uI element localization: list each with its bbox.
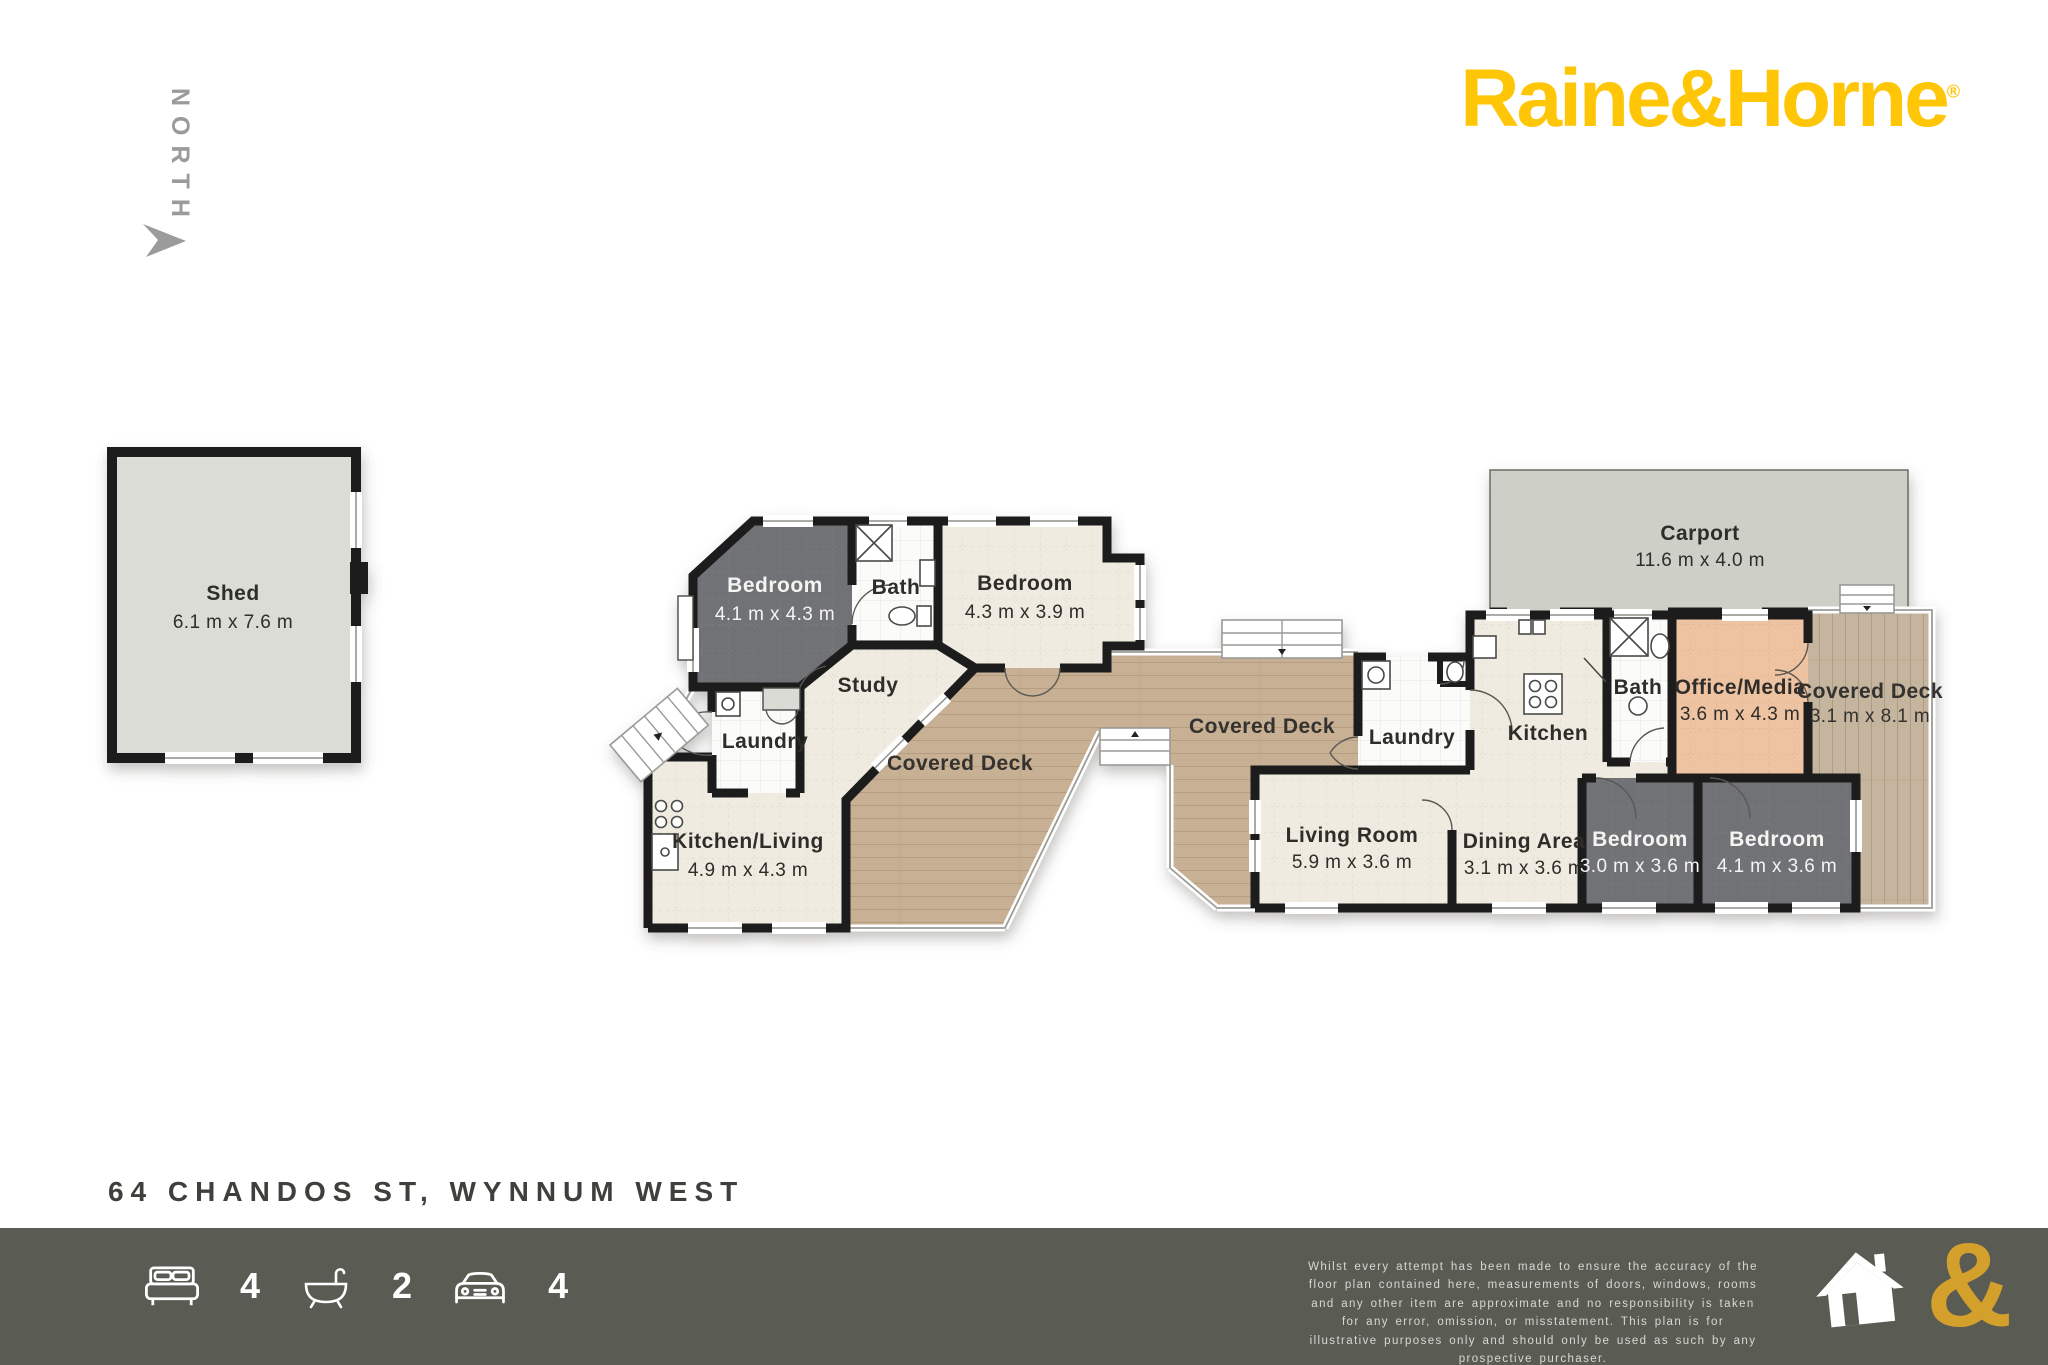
- bedroom1-wardrobe: [678, 596, 693, 660]
- laundry1-closet: [763, 688, 800, 710]
- deck-right-dims: 3.1 m x 8.1 m: [1810, 706, 1930, 727]
- bath2-label: Bath: [1614, 676, 1663, 699]
- deck-middle-label: Covered Deck: [1189, 715, 1335, 738]
- shed-label: Shed: [206, 582, 259, 605]
- shed: Shed 6.1 m x 7.6 m: [112, 452, 368, 758]
- living-dims: 5.9 m x 3.6 m: [1292, 852, 1412, 873]
- kitchen-label: Kitchen: [1508, 722, 1589, 745]
- baths-count: 2: [392, 1265, 412, 1307]
- brand-logo-text: Raine&Horne: [1460, 53, 1946, 144]
- house-icon: [1807, 1239, 1917, 1346]
- kitchen-living-dims: 4.9 m x 4.3 m: [688, 860, 808, 881]
- bedroom2-dims: 4.3 m x 3.9 m: [965, 602, 1085, 623]
- shed-meter-box: [350, 562, 368, 594]
- north-indicator: NORTH: [143, 88, 194, 257]
- north-label: NORTH: [166, 88, 194, 227]
- office-label: Office/Media: [1675, 676, 1806, 699]
- dining-dims: 3.1 m x 3.6 m: [1464, 858, 1584, 879]
- toilet-3: [1651, 634, 1669, 658]
- bedroom1-dims: 4.1 m x 4.3 m: [715, 604, 835, 625]
- study-label: Study: [838, 674, 899, 697]
- vanity-1: [920, 560, 935, 586]
- bed-icon: [140, 1262, 204, 1310]
- cooktop-2: [1530, 681, 1541, 692]
- beds-count: 4: [240, 1265, 260, 1307]
- carport-label: Carport: [1660, 522, 1739, 545]
- shed-dims: 6.1 m x 7.6 m: [173, 612, 293, 633]
- kitchen-island: [1524, 674, 1562, 714]
- brand-logo: Raine&Horne®: [1460, 52, 1960, 146]
- bedroom3-label: Bedroom: [1592, 828, 1688, 851]
- living-label: Living Room: [1286, 824, 1419, 847]
- registered-mark: ®: [1947, 82, 1960, 102]
- stairs-carport: [1840, 585, 1894, 613]
- office-dims: 3.6 m x 4.3 m: [1680, 704, 1800, 725]
- ampersand-logo: &: [1926, 1216, 2013, 1354]
- deck-right-label: Covered Deck: [1797, 680, 1943, 703]
- kitchen-living-label: Kitchen/Living: [672, 830, 824, 853]
- cooktop-1: [656, 801, 667, 812]
- bedroom2-label: Bedroom: [977, 572, 1073, 595]
- stairs-top-middle: [1222, 620, 1342, 658]
- stairs-deck-notch: [1100, 728, 1170, 765]
- bath-icon: [296, 1262, 356, 1310]
- bedroom4-label: Bedroom: [1729, 828, 1825, 851]
- kitchen2-sink: [1519, 620, 1531, 634]
- cars-count: 4: [548, 1265, 568, 1307]
- laundry2-label: Laundry: [1369, 726, 1455, 749]
- bedroom4-dims: 4.1 m x 3.6 m: [1717, 856, 1837, 877]
- deck-left-label: Covered Deck: [887, 752, 1033, 775]
- fridge: [1473, 636, 1496, 658]
- dining-label: Dining Area: [1463, 830, 1586, 853]
- bath1-label: Bath: [872, 576, 921, 599]
- car-icon: [448, 1262, 512, 1310]
- property-address: 64 CHANDOS ST, WYNNUM WEST: [108, 1176, 744, 1208]
- toilet-1: [889, 607, 915, 625]
- disclaimer-text: Whilst every attempt has been made to en…: [1308, 1258, 1758, 1365]
- toilet-2: [1447, 662, 1463, 682]
- bedroom1-label: Bedroom: [727, 574, 823, 597]
- bedroom3-dims: 3.0 m x 3.6 m: [1580, 856, 1700, 877]
- north-arrow-icon: [143, 224, 186, 257]
- laundry1-label: Laundry: [722, 730, 808, 753]
- footer-bar: 4 2 4 Whilst every attempt has been made…: [0, 1228, 2048, 1365]
- basin-2: [1629, 697, 1647, 715]
- property-stats: 4 2 4: [140, 1262, 568, 1310]
- floorplan-drawing: NORTH Shed 6.1 m x 7.6 m: [0, 0, 2048, 1365]
- carport-dims: 11.6 m x 4.0 m: [1635, 550, 1765, 571]
- floorplan-page: NORTH Shed 6.1 m x 7.6 m: [0, 0, 2048, 1365]
